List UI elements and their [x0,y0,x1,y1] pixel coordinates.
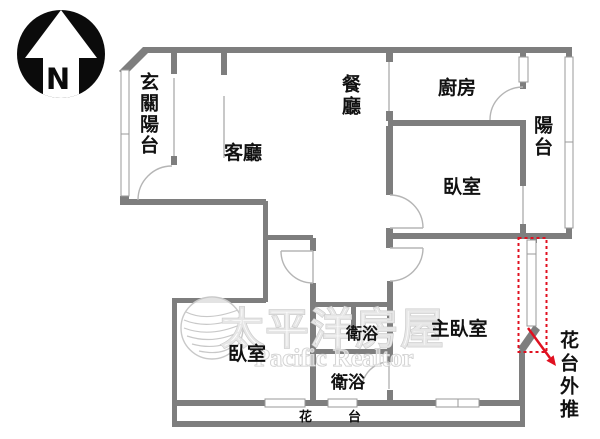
floorplan-page: N [0,0,600,439]
room-label-balcony: 陽台 [531,115,553,159]
floorplan-canvas: N [0,0,600,439]
room-label-bedroom-lower: 臥室 [228,342,266,365]
room-label-bedroom-upper: 臥室 [443,175,481,198]
room-label-bath-upper: 衛浴 [345,324,379,343]
pushout-label: 花台外推 [557,329,579,422]
watermark-brand-en: Pacific Realtor [255,345,414,372]
room-label-dining: 餐廳 [339,73,361,118]
room-label-living: 客廳 [224,141,262,164]
north-compass: N [17,10,105,98]
room-label-flower-bed: 花台 [299,409,397,425]
room-label-kitchen: 廚房 [438,76,476,99]
room-label-entry-balcony: 玄關陽台 [137,71,159,156]
watermark: 太平洋房屋 Pacific Realtor [181,297,446,372]
room-label-master-bedroom: 主臥室 [430,317,487,340]
compass-north-label: N [46,62,70,96]
room-label-bath-lower: 衛浴 [330,372,366,393]
